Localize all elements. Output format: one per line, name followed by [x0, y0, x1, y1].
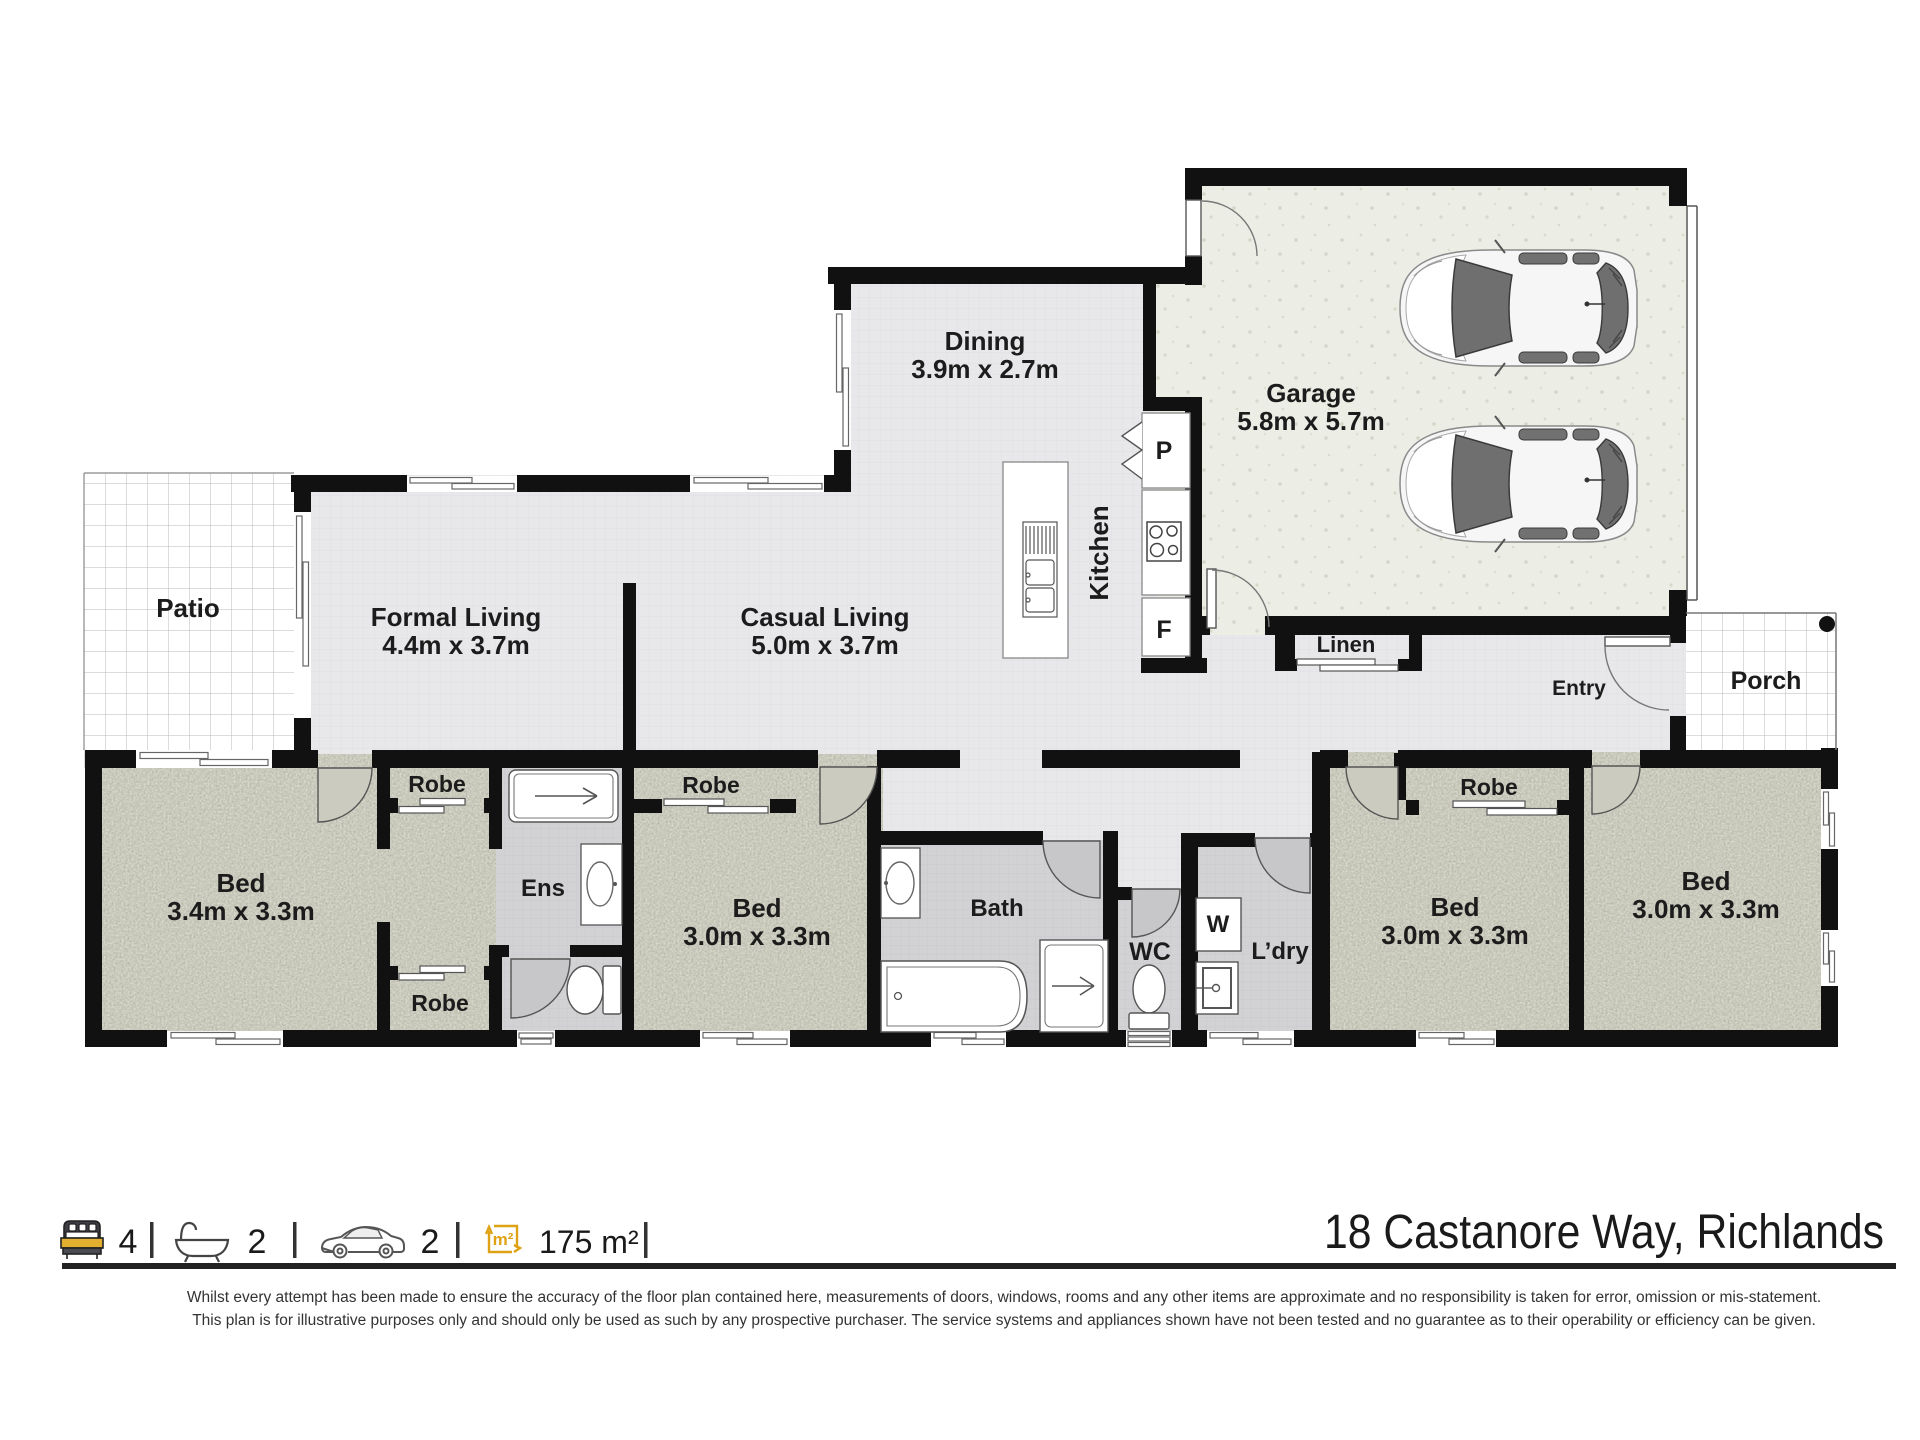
svg-text:Bath: Bath [970, 895, 1023, 922]
svg-text:WC: WC [1129, 938, 1171, 966]
svg-text:3.0m x 3.3m: 3.0m x 3.3m [1381, 920, 1528, 950]
svg-text:Robe: Robe [411, 990, 469, 1016]
svg-text:Robe: Robe [1460, 774, 1518, 800]
svg-text:Patio: Patio [156, 593, 220, 623]
svg-text:5.0m x 3.7m: 5.0m x 3.7m [751, 630, 898, 660]
svg-text:5.8m x 5.7m: 5.8m x 5.7m [1237, 406, 1384, 436]
svg-text:Porch: Porch [1731, 667, 1802, 695]
svg-text:L’dry: L’dry [1251, 938, 1309, 965]
svg-text:P: P [1156, 437, 1173, 465]
svg-text:Entry: Entry [1552, 677, 1606, 700]
svg-text:Bed: Bed [216, 868, 265, 898]
svg-text:Robe: Robe [408, 771, 466, 797]
svg-text:Bed: Bed [1430, 892, 1479, 922]
svg-text:Dining: Dining [945, 326, 1026, 356]
svg-text:This plan is for illustrative: This plan is for illustrative purposes o… [192, 1312, 1816, 1329]
svg-text:Bed: Bed [732, 893, 781, 923]
svg-text:Ens: Ens [521, 875, 565, 902]
svg-text:Whilst every attempt has been: Whilst every attempt has been made to en… [187, 1289, 1821, 1306]
svg-text:m²: m² [493, 1230, 514, 1249]
svg-text:Casual Living: Casual Living [740, 602, 909, 632]
svg-text:Kitchen: Kitchen [1084, 505, 1114, 600]
svg-text:Garage: Garage [1266, 378, 1356, 408]
svg-text:Formal Living: Formal Living [371, 602, 541, 632]
svg-text:F: F [1156, 616, 1171, 644]
svg-text:4: 4 [119, 1223, 138, 1261]
svg-text:2: 2 [421, 1223, 440, 1261]
svg-text:3.0m x 3.3m: 3.0m x 3.3m [683, 921, 830, 951]
svg-text:Linen: Linen [1317, 632, 1376, 657]
svg-text:3.9m x 2.7m: 3.9m x 2.7m [911, 354, 1058, 384]
svg-text:Bed: Bed [1681, 866, 1730, 896]
svg-text:175 m²: 175 m² [539, 1224, 639, 1260]
svg-text:4.4m x 3.7m: 4.4m x 3.7m [382, 630, 529, 660]
svg-text:2: 2 [248, 1223, 267, 1261]
svg-text:18 Castanore Way, Richlands: 18 Castanore Way, Richlands [1324, 1206, 1884, 1259]
svg-text:W: W [1207, 911, 1230, 938]
svg-text:Robe: Robe [682, 772, 740, 798]
svg-text:3.4m x 3.3m: 3.4m x 3.3m [167, 896, 314, 926]
svg-text:3.0m x 3.3m: 3.0m x 3.3m [1632, 894, 1779, 924]
